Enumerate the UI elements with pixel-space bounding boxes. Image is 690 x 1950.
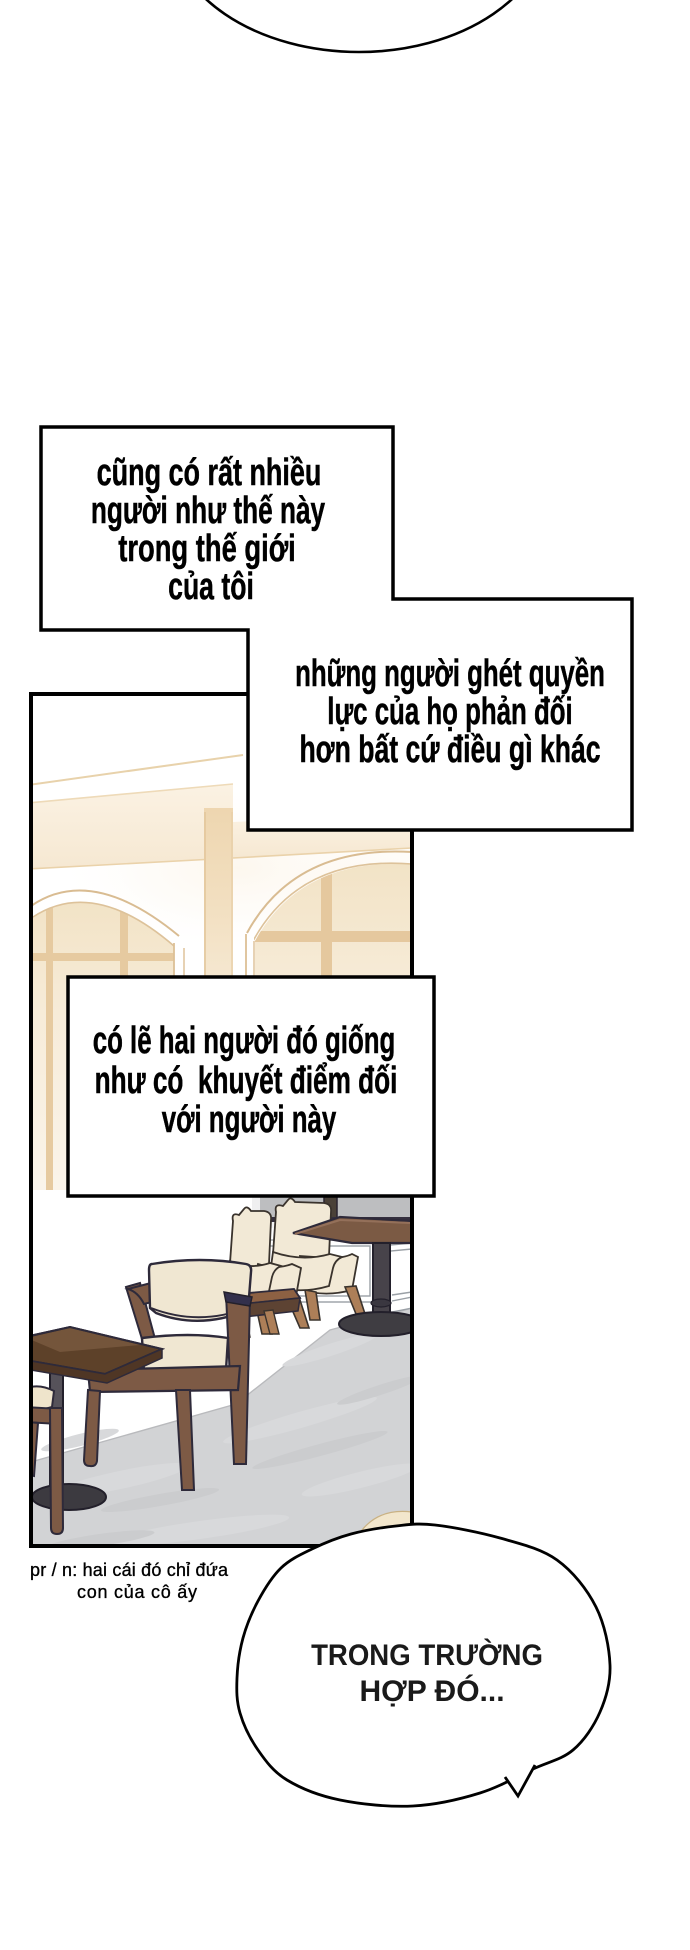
svg-text:hơn bất cứ điều gì khác: hơn bất cứ điều gì khác bbox=[299, 727, 600, 770]
svg-text:người như thế này: người như thế này bbox=[91, 488, 325, 531]
svg-text:cũng có rất nhiều: cũng có rất nhiều bbox=[97, 450, 322, 493]
svg-text:với người này: với người này bbox=[162, 1098, 337, 1140]
svg-text:pr / n: hai cái đó chỉ đứa: pr / n: hai cái đó chỉ đứa bbox=[30, 1560, 229, 1580]
svg-text:con của cô ấy: con của cô ấy bbox=[77, 1582, 197, 1602]
svg-text:của tôi: của tôi bbox=[168, 564, 254, 607]
svg-text:HỢP ĐÓ...: HỢP ĐÓ... bbox=[359, 1674, 504, 1708]
svg-text:TRONG TRƯỜNG: TRONG TRƯỜNG bbox=[311, 1637, 543, 1672]
svg-text:lực của họ phản đối: lực của họ phản đối bbox=[327, 690, 572, 732]
svg-text:có lẽ hai người đó giống: có lẽ hai người đó giống bbox=[93, 1019, 396, 1061]
svg-text:như có khuyết điểm đối: như có khuyết điểm đối bbox=[95, 1058, 398, 1101]
svg-text:những người ghét quyền: những người ghét quyền bbox=[295, 652, 605, 694]
